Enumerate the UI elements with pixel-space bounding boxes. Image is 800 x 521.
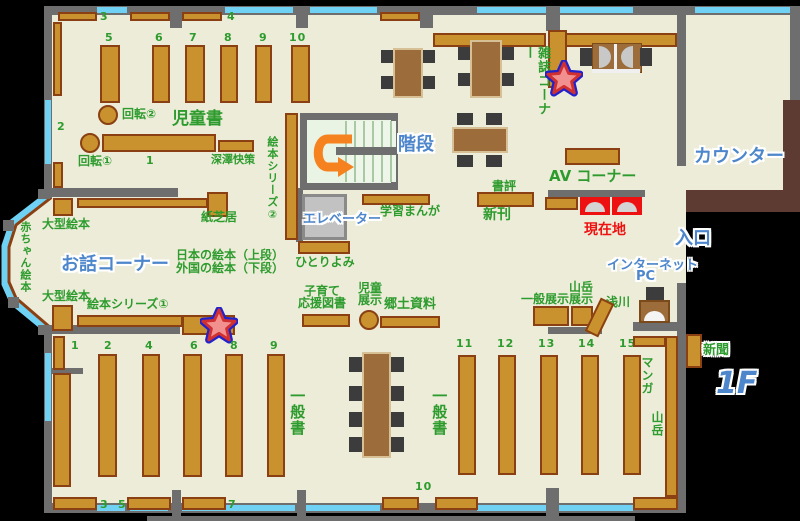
entrance-label: 入口 xyxy=(675,224,711,250)
shelf-kosodate xyxy=(302,314,350,327)
shelf-right-horizontal xyxy=(633,336,666,347)
jido-tenji-rack xyxy=(359,310,379,330)
gakushu-manga-label: 学習まんが xyxy=(380,205,440,218)
sofa-divider xyxy=(614,44,617,70)
shelf-ehon-series-1 xyxy=(77,315,183,327)
shelf-number: 2 xyxy=(57,120,66,133)
shelf-number: 6 xyxy=(190,339,199,352)
stairs-label: 階段 xyxy=(398,130,434,156)
shelf-number: 7 xyxy=(228,498,237,511)
chair xyxy=(486,155,502,167)
library-floor-map: カウンター 階段 エレベーター 3 4 5 6 7 8 9 10 2 回転② 児… xyxy=(0,0,800,521)
shelf-number: 7 xyxy=(189,31,198,44)
shelf-general xyxy=(267,354,285,477)
bay-corner xyxy=(3,220,14,231)
shelf-number: 5 xyxy=(118,498,127,511)
shelf-general xyxy=(458,355,476,475)
shelf-number: 4 xyxy=(145,339,154,352)
rotating-rack-2 xyxy=(98,105,118,125)
shelf-number: 12 xyxy=(497,337,514,350)
shelf-number: 9 xyxy=(270,339,279,352)
window xyxy=(45,353,51,421)
shelf-number: 11 xyxy=(456,337,473,350)
shelf-top xyxy=(380,12,420,21)
pillar xyxy=(297,490,306,521)
shelf-children-2 xyxy=(53,22,62,96)
shelf-fukazawa xyxy=(218,140,254,152)
chair xyxy=(486,113,502,125)
study-table xyxy=(362,352,391,458)
pillar xyxy=(546,6,560,31)
shelf-general xyxy=(53,373,71,487)
shelf-number: 10 xyxy=(289,31,306,44)
chair xyxy=(458,47,470,60)
pillar xyxy=(420,6,433,28)
chair xyxy=(391,437,404,452)
ogata-ehon-upper-label: 大型絵本 xyxy=(42,218,90,231)
shelf-hitoriyomi xyxy=(298,241,350,254)
bay-corner xyxy=(8,297,19,308)
shelf-kyodo-shiryo xyxy=(380,316,440,328)
ippan-tenji-label: 一般展示 xyxy=(521,293,569,306)
shelf-small xyxy=(53,162,63,188)
star-marker xyxy=(545,60,583,98)
shelf-bottom xyxy=(182,497,226,510)
chair xyxy=(349,412,362,427)
shelf-general xyxy=(623,355,641,475)
chair xyxy=(391,386,404,401)
shelf-top xyxy=(130,12,170,21)
shelf-number: 3 xyxy=(100,10,109,23)
pillar xyxy=(546,488,559,521)
shelf-number: 4 xyxy=(227,10,236,23)
shelf-bottom xyxy=(633,497,678,510)
shelf-children-9 xyxy=(255,45,272,103)
chair xyxy=(423,50,435,63)
shelf-general xyxy=(225,354,243,477)
wall-genzaichi xyxy=(548,190,645,197)
rotating-rack-1 xyxy=(80,133,100,153)
chair xyxy=(502,47,514,60)
wall-counter-divider xyxy=(677,6,686,166)
shinkan-label: 新刊 xyxy=(483,208,511,223)
manga-label: マンガ xyxy=(640,356,653,402)
chair xyxy=(381,76,393,89)
chair xyxy=(349,437,362,452)
shelf-number: 6 xyxy=(155,31,164,44)
shelf-number: 10 xyxy=(415,480,432,493)
window xyxy=(310,7,377,13)
hitoriyomi-label: ひとりよみ xyxy=(295,256,355,269)
shelf-ippan-tenji xyxy=(533,306,569,326)
chair xyxy=(423,76,435,89)
shelf-shinbun xyxy=(686,334,702,368)
chair xyxy=(349,357,362,372)
reading-table xyxy=(393,48,423,98)
counter-desk-horizontal xyxy=(686,190,800,212)
shelf-kamishibai xyxy=(77,198,208,208)
shelf-bottom xyxy=(53,497,97,510)
wall-outer-strip xyxy=(147,516,635,521)
shelf-general xyxy=(53,336,65,370)
kosodate-label-2: 応援図書 xyxy=(298,297,346,310)
shelf-bottom xyxy=(435,497,478,510)
shelf-top xyxy=(58,12,97,21)
shelf-children-8 xyxy=(220,45,238,103)
shelf-number: 9 xyxy=(259,31,268,44)
pillar xyxy=(170,6,182,28)
sofa-base xyxy=(592,69,640,73)
story-corner-label: お話コーナー xyxy=(61,250,169,276)
shelf-general xyxy=(183,354,202,477)
sangaku-tenji-label-2: 展示 xyxy=(569,293,593,306)
pc-monitor xyxy=(646,287,664,300)
chair xyxy=(457,113,473,125)
shelf-children-6 xyxy=(152,45,170,103)
general-books-right-label: 一般書 xyxy=(431,388,447,438)
shelf-top xyxy=(182,12,222,21)
chair xyxy=(391,412,404,427)
chair xyxy=(457,155,473,167)
window xyxy=(305,505,380,511)
av-corner-label: AV コーナー xyxy=(549,168,636,184)
japanese-ehon-label: 日本の絵本（上段） xyxy=(176,249,284,262)
kamishibai-label: 紙芝居 xyxy=(201,211,237,224)
wall-counter-right xyxy=(790,6,800,103)
shelf-number: 2 xyxy=(104,339,113,352)
counter-desk-vertical xyxy=(783,100,800,192)
shelf-av xyxy=(565,148,620,165)
fukazawa-label: 深澤快策 xyxy=(211,154,255,166)
window xyxy=(45,100,51,164)
shelf-shinkan xyxy=(477,192,534,207)
pillar xyxy=(296,6,308,28)
reading-table xyxy=(470,40,502,98)
shelf-number: 1 xyxy=(71,339,80,352)
shelf-ogata-ehon-lower xyxy=(52,305,73,331)
reading-table xyxy=(452,127,508,153)
shohyo-label: 書評 xyxy=(492,180,516,193)
sangaku-label: 山岳 xyxy=(650,411,663,443)
shelf-ogata-ehon-upper xyxy=(53,198,73,216)
shelf-bottom xyxy=(127,497,171,510)
shelf-children-7 xyxy=(185,45,205,103)
shelf-number: 1 xyxy=(146,154,155,167)
shelf-general xyxy=(581,355,599,475)
shelf-genzaichi xyxy=(545,197,578,210)
rotating-rack-2-label: 回転② xyxy=(122,108,156,121)
shelf-general xyxy=(98,354,117,477)
children-books-label: 児童書 xyxy=(172,110,223,128)
pillar xyxy=(172,490,181,521)
wall-pc xyxy=(633,322,678,331)
shelf-number: 5 xyxy=(105,31,114,44)
chair xyxy=(502,73,514,86)
window xyxy=(695,7,790,13)
kyodo-shiryo-label: 郷土資料 xyxy=(384,298,436,312)
shelf-number: 8 xyxy=(230,339,239,352)
counter-label: カウンター xyxy=(694,142,784,168)
ogata-ehon-lower-label: 大型絵本 xyxy=(42,290,90,303)
jido-tenji-label-2: 展示 xyxy=(358,294,382,307)
chair xyxy=(349,386,362,401)
sofa-armrest xyxy=(640,48,652,66)
wall-children-south xyxy=(47,188,178,197)
general-books-left-label: 一般書 xyxy=(289,388,305,438)
floor-badge: 1F xyxy=(716,366,757,401)
internet-pc-label-2: PC xyxy=(636,269,655,284)
shelf-children-5 xyxy=(100,45,120,103)
shelf-number: 14 xyxy=(578,337,595,350)
shelf-ehon-series-2 xyxy=(285,113,298,240)
elevator-label: エレベーター xyxy=(303,208,381,227)
shelf-number: 3 xyxy=(100,498,109,511)
shelf-general xyxy=(498,355,516,475)
shelf-children-10 xyxy=(291,45,310,103)
shinbun-label: 新聞 xyxy=(703,344,729,358)
baby-books-label: 赤ちゃん絵本 xyxy=(19,221,31,307)
shelf-general xyxy=(540,355,558,475)
current-location-label: 現在地 xyxy=(584,219,626,239)
stairs-direction-arrow xyxy=(306,131,356,179)
shelf-number: 8 xyxy=(224,31,233,44)
rotating-rack-1-label: 回転① xyxy=(78,155,112,168)
shelf-bottom xyxy=(382,497,419,510)
chair xyxy=(391,357,404,372)
foreign-ehon-label: 外国の絵本（下段） xyxy=(176,262,284,275)
chair xyxy=(381,50,393,63)
shelf-children-1 xyxy=(102,134,216,152)
shelf-right-vertical xyxy=(665,336,678,497)
ehon-series-2-label: 絵本シリーズ② xyxy=(266,136,278,228)
wall-right-lower xyxy=(677,283,686,513)
shelf-number: 13 xyxy=(538,337,555,350)
shelf-general xyxy=(142,354,160,477)
chair xyxy=(458,73,470,86)
ehon-series-1-label: 絵本シリーズ① xyxy=(87,298,169,311)
